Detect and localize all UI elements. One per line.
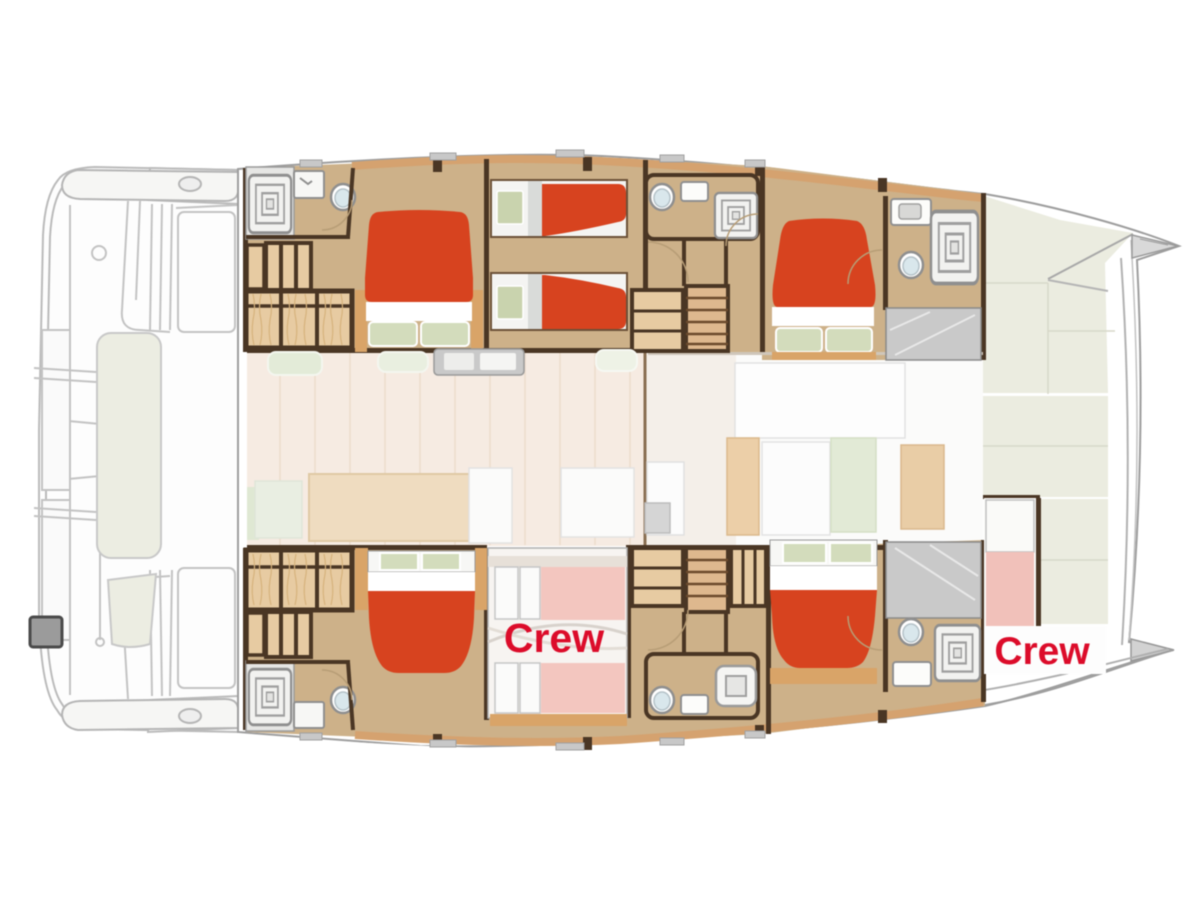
svg-text:Crew: Crew bbox=[504, 615, 604, 661]
svg-text:Crew: Crew bbox=[994, 630, 1090, 673]
